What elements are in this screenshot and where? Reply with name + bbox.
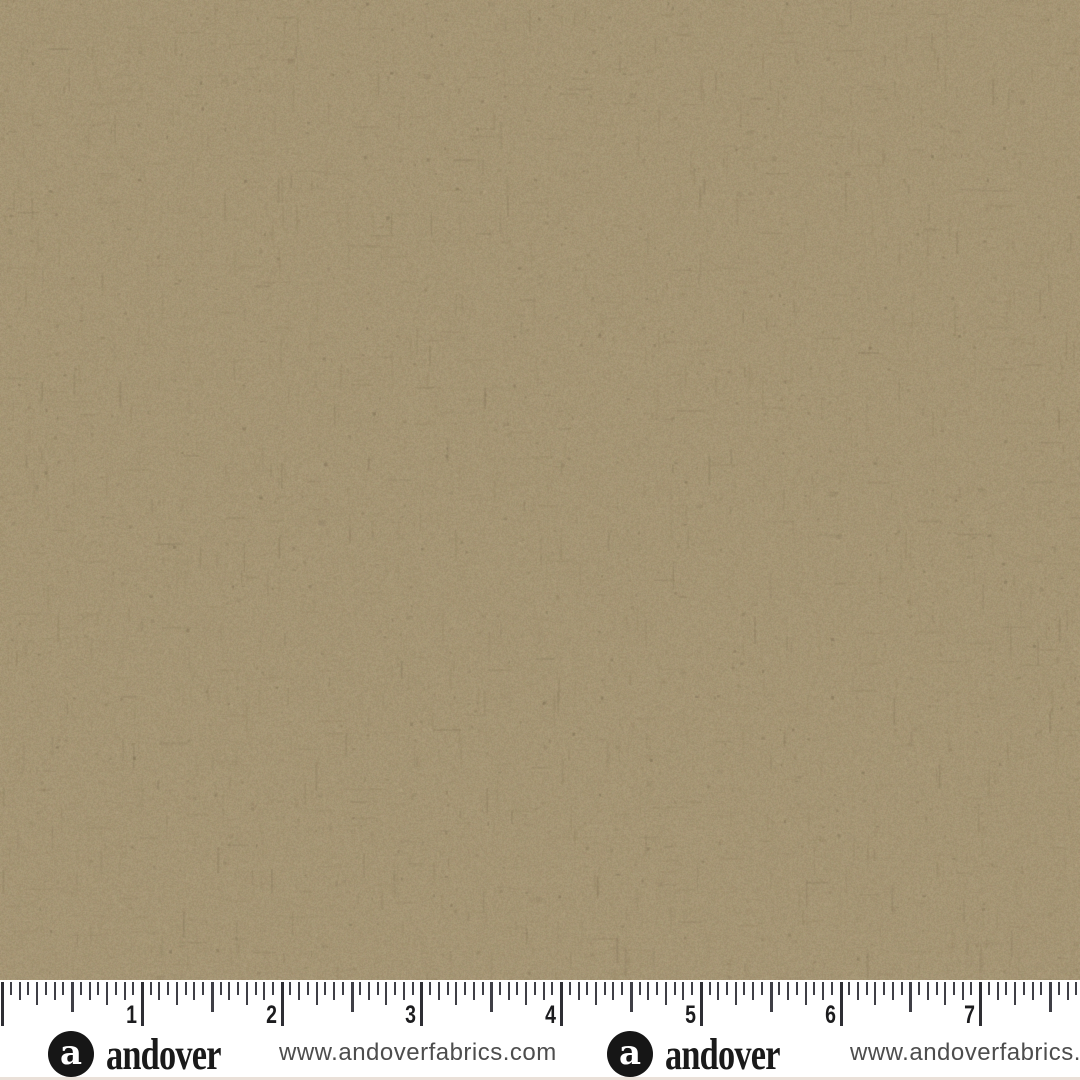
ruler-tick (351, 982, 354, 1012)
ruler-tick (403, 982, 405, 1000)
ruler-tick (316, 982, 318, 1005)
ruler-tick (255, 982, 257, 995)
ruler-tick (543, 982, 545, 1000)
ruler-tick (682, 982, 684, 1000)
ruler-tick (272, 982, 274, 995)
ruler-tick (482, 982, 484, 995)
ruler: 1234567 (0, 980, 1080, 1028)
ruler-tick (237, 982, 239, 995)
ruler-number: 2 (253, 1003, 276, 1028)
andover-logo-icon: a (619, 1036, 641, 1073)
ruler-tick (333, 982, 335, 1000)
ruler-tick (831, 982, 833, 995)
ruler-tick (927, 982, 929, 1000)
ruler-tick (1067, 982, 1069, 1000)
ruler-tick (892, 982, 894, 1000)
ruler-tick (901, 982, 903, 995)
ruler-tick (700, 982, 703, 1026)
ruler-tick (778, 982, 780, 995)
ruler-tick (1005, 982, 1007, 995)
ruler-tick (62, 982, 64, 995)
ruler-tick (342, 982, 344, 995)
ruler-tick (158, 982, 160, 1000)
ruler-tick (848, 982, 850, 995)
ruler-tick (516, 982, 518, 995)
ruler-tick (80, 982, 82, 995)
ruler-tick (534, 982, 536, 995)
selvage-footer: 1234567 a andover www.andoverfabrics.com… (0, 980, 1080, 1080)
ruler-tick (490, 982, 493, 1012)
ruler-tick (289, 982, 291, 995)
ruler-tick (586, 982, 588, 995)
ruler-tick (874, 982, 876, 1005)
ruler-tick (54, 982, 56, 1000)
ruler-tick (150, 982, 152, 995)
fabric-swatch (0, 0, 1080, 980)
ruler-tick (71, 982, 74, 1012)
ruler-tick (639, 982, 641, 995)
ruler-number: 5 (672, 1003, 695, 1028)
ruler-tick (132, 982, 134, 995)
ruler-tick (97, 982, 99, 995)
ruler-tick (612, 982, 614, 1000)
ruler-tick (743, 982, 745, 995)
ruler-tick (770, 982, 773, 1012)
andover-logo: a (607, 1031, 653, 1077)
ruler-tick (752, 982, 754, 1000)
ruler-tick (115, 982, 117, 995)
ruler-tick (822, 982, 824, 1000)
ruler-tick (551, 982, 553, 995)
ruler-tick (307, 982, 309, 995)
ruler-tick (228, 982, 230, 1000)
ruler-tick (735, 982, 737, 1005)
ruler-tick (45, 982, 47, 995)
ruler-tick (717, 982, 719, 1000)
ruler-tick (988, 982, 990, 995)
ruler-tick (1023, 982, 1025, 995)
ruler-tick (508, 982, 510, 1000)
ruler-tick (1014, 982, 1016, 1005)
ruler-tick (578, 982, 580, 1000)
ruler-tick (674, 982, 676, 995)
ruler-tick (805, 982, 807, 1005)
ruler-tick (429, 982, 431, 995)
ruler-tick (89, 982, 91, 1000)
ruler-tick (27, 982, 29, 995)
andover-wordmark: andover (665, 1033, 780, 1077)
ruler-tick (263, 982, 265, 1000)
ruler-tick (19, 982, 21, 1000)
ruler-tick (124, 982, 126, 1000)
ruler-tick (866, 982, 868, 995)
ruler-tick (106, 982, 108, 1005)
ruler-tick (298, 982, 300, 1000)
ruler-number: 3 (393, 1003, 416, 1028)
ruler-tick (621, 982, 623, 995)
andover-url: www.andoverfabrics.com (279, 1039, 557, 1067)
ruler-tick (455, 982, 457, 1005)
andover-logo-icon: a (60, 1036, 82, 1073)
ruler-tick (953, 982, 955, 995)
ruler-tick (560, 982, 563, 1026)
ruler-tick (1075, 982, 1077, 995)
fabric-product-image: 1234567 a andover www.andoverfabrics.com… (0, 0, 1080, 1080)
ruler-tick (141, 982, 144, 1026)
ruler-tick (970, 982, 972, 995)
ruler-tick (691, 982, 693, 995)
ruler-tick (647, 982, 649, 1000)
ruler-tick (1058, 982, 1060, 995)
ruler-tick (185, 982, 187, 995)
ruler-tick (36, 982, 38, 1005)
ruler-tick (997, 982, 999, 1000)
ruler-tick (656, 982, 658, 995)
ruler-number: 4 (533, 1003, 556, 1028)
andover-url: www.andoverfabrics.com (850, 1039, 1080, 1067)
ruler-tick (909, 982, 912, 1012)
ruler-tick (202, 982, 204, 995)
ruler-tick (709, 982, 711, 995)
ruler-number: 6 (812, 1003, 835, 1028)
ruler-tick (796, 982, 798, 995)
ruler-tick (438, 982, 440, 1000)
ruler-tick (499, 982, 501, 995)
ruler-tick (726, 982, 728, 995)
ruler-tick (211, 982, 214, 1012)
ruler-tick (220, 982, 222, 995)
ruler-tick (962, 982, 964, 1000)
ruler-tick (473, 982, 475, 1000)
ruler-tick (936, 982, 938, 995)
ruler-tick (385, 982, 387, 1005)
ruler-tick (665, 982, 667, 1005)
ruler-tick (944, 982, 946, 1005)
ruler-tick (813, 982, 815, 995)
ruler-number: 7 (952, 1003, 975, 1028)
ruler-tick (857, 982, 859, 1000)
ruler-tick (394, 982, 396, 995)
ruler-tick (569, 982, 571, 995)
ruler-tick (595, 982, 597, 1005)
ruler-tick (1049, 982, 1052, 1012)
ruler-tick (840, 982, 843, 1026)
ruler-tick (525, 982, 527, 1005)
ruler-tick (246, 982, 248, 1005)
ruler-tick (630, 982, 633, 1012)
ruler-tick (10, 982, 12, 995)
ruler-number: 1 (114, 1003, 137, 1028)
ruler-tick (176, 982, 178, 1005)
ruler-tick (1, 982, 4, 1026)
ruler-tick (447, 982, 449, 995)
ruler-tick (604, 982, 606, 995)
ruler-tick (377, 982, 379, 995)
ruler-tick (1040, 982, 1042, 995)
ruler-tick (761, 982, 763, 995)
ruler-tick (412, 982, 414, 995)
ruler-tick (420, 982, 423, 1026)
ruler-tick (368, 982, 370, 1000)
ruler-tick (324, 982, 326, 995)
ruler-tick (167, 982, 169, 995)
andover-wordmark: andover (106, 1033, 221, 1077)
andover-logo: a (48, 1031, 94, 1077)
ruler-tick (883, 982, 885, 995)
ruler-tick (281, 982, 284, 1026)
ruler-tick (359, 982, 361, 995)
ruler-tick (1032, 982, 1034, 1000)
ruler-tick (979, 982, 982, 1026)
ruler-tick (464, 982, 466, 995)
ruler-tick (193, 982, 195, 1000)
ruler-tick (918, 982, 920, 995)
ruler-tick (787, 982, 789, 1000)
